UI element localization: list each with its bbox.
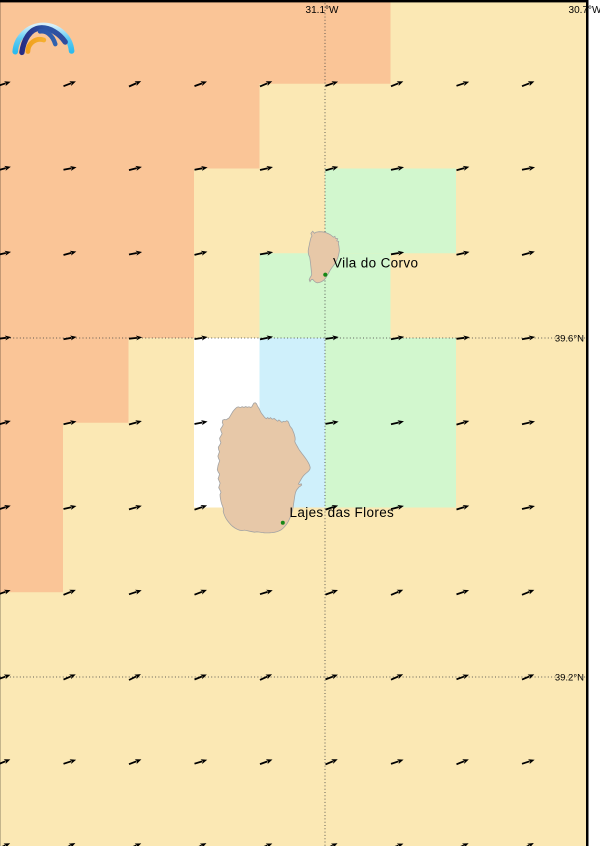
svg-text:31.1°W: 31.1°W (306, 5, 339, 16)
svg-text:39.2°N: 39.2°N (555, 672, 584, 683)
svg-text:39.6°N: 39.6°N (555, 333, 584, 344)
svg-text:Vila do Corvo: Vila do Corvo (333, 256, 418, 271)
svg-text:30.7°W: 30.7°W (569, 5, 600, 16)
svg-text:Lajes das Flores: Lajes das Flores (290, 505, 395, 520)
